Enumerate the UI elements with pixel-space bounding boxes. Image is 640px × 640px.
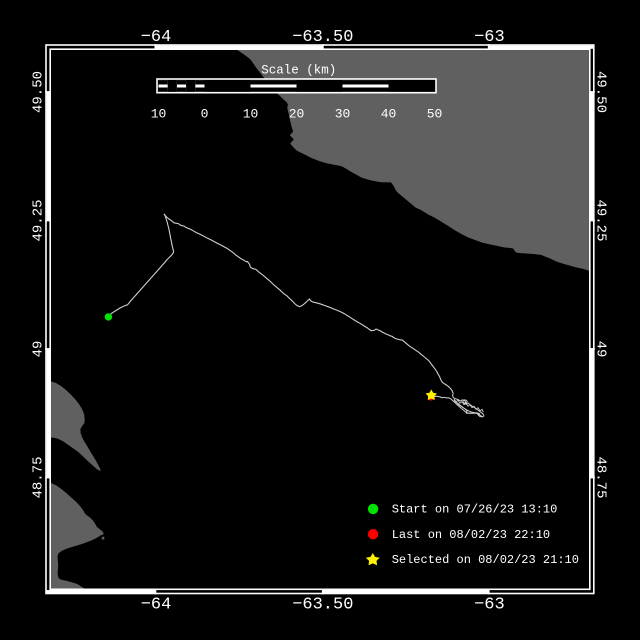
svg-text:Last on 08/02/23 22:10: Last on 08/02/23 22:10 <box>392 528 550 542</box>
svg-text:48.75: 48.75 <box>31 456 47 498</box>
svg-text:−63.50: −63.50 <box>292 596 353 615</box>
svg-text:−64: −64 <box>141 596 172 615</box>
svg-text:Scale (km): Scale (km) <box>261 64 336 78</box>
svg-text:49.50: 49.50 <box>31 71 47 113</box>
svg-text:49.25: 49.25 <box>31 199 47 241</box>
svg-text:−63: −63 <box>474 28 505 47</box>
svg-text:−63.50: −63.50 <box>292 28 353 47</box>
svg-text:20: 20 <box>289 106 305 121</box>
svg-text:Start on 07/26/23 13:10: Start on 07/26/23 13:10 <box>392 503 558 517</box>
svg-text:49: 49 <box>31 341 47 358</box>
svg-text:10: 10 <box>243 106 259 121</box>
svg-text:−63: −63 <box>474 596 505 615</box>
svg-text:10: 10 <box>151 106 167 121</box>
svg-text:30: 30 <box>335 106 351 121</box>
svg-text:Selected on 08/02/23 21:10: Selected on 08/02/23 21:10 <box>392 553 579 567</box>
svg-text:48.75: 48.75 <box>592 456 608 498</box>
svg-text:49.50: 49.50 <box>592 71 608 113</box>
svg-text:49.25: 49.25 <box>592 199 608 241</box>
svg-text:−64: −64 <box>141 28 172 47</box>
svg-text:40: 40 <box>381 106 397 121</box>
svg-text:49: 49 <box>592 341 608 358</box>
svg-text:50: 50 <box>427 106 443 121</box>
svg-text:0: 0 <box>201 106 209 121</box>
